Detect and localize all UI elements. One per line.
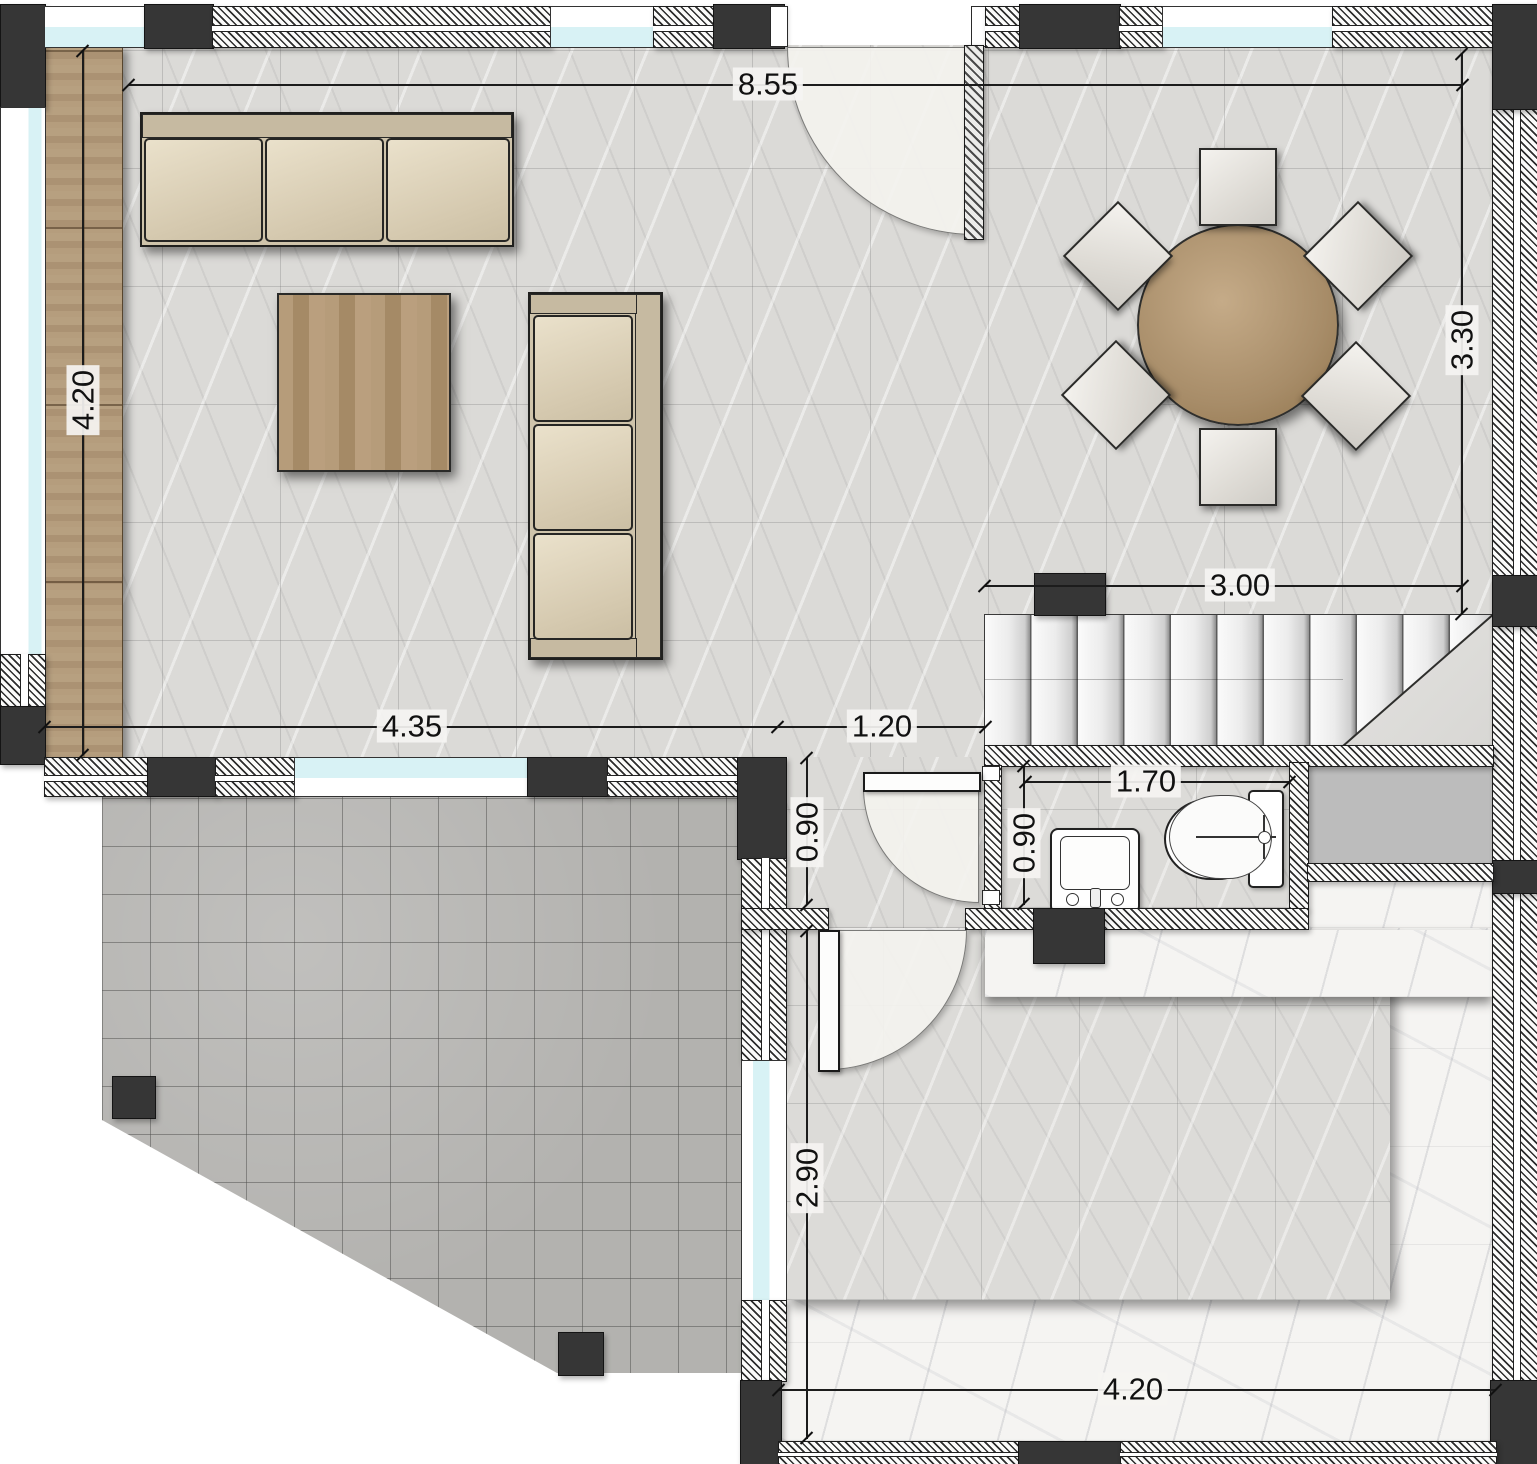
column xyxy=(1490,1380,1537,1464)
bedroom-floor-notch xyxy=(1307,880,1492,928)
dim-room-width: 4.20 xyxy=(1098,1373,1168,1406)
dining-chair xyxy=(1199,428,1277,506)
dim-living-bottom: 4.35 xyxy=(377,710,447,743)
dining-chair xyxy=(1199,148,1277,226)
column xyxy=(0,4,46,109)
column xyxy=(1034,573,1106,616)
wall-bottom xyxy=(778,1441,1020,1464)
window-top-1 xyxy=(44,6,146,48)
window-living-bottom xyxy=(294,757,529,797)
dim-hall-width: 1.20 xyxy=(847,710,917,743)
wall-hall-bottom xyxy=(741,908,829,930)
dim-room-depth: 2.90 xyxy=(791,1143,824,1213)
wall-top xyxy=(212,6,552,48)
column xyxy=(1492,860,1537,894)
wall-right xyxy=(1492,4,1537,1462)
column xyxy=(112,1076,156,1119)
sofa-horizontal xyxy=(140,112,514,247)
wall-top xyxy=(985,6,1021,48)
wall-shaft-bottom xyxy=(1307,863,1494,882)
dim-stairs-width: 3.00 xyxy=(1205,569,1275,602)
dim-right-height: 3.30 xyxy=(1446,305,1479,375)
coffee-table xyxy=(277,293,451,472)
window-left xyxy=(0,107,46,656)
terrace-floor xyxy=(102,795,742,1375)
floor-plan: 8.55 4.20 3.30 3.00 4.35 1.20 0.90 0.90 … xyxy=(0,0,1537,1464)
column xyxy=(0,706,46,765)
bathroom-sink xyxy=(1050,828,1140,914)
column xyxy=(527,757,609,797)
wall-living-bottom xyxy=(44,757,149,797)
column xyxy=(1018,1441,1122,1464)
wall-under-stairs xyxy=(984,745,1494,767)
wall-top xyxy=(653,6,715,48)
wall-bathroom-right xyxy=(1289,762,1309,910)
column xyxy=(1492,575,1537,627)
wall-bathroom-left xyxy=(984,765,1002,910)
wall-hall-bottom xyxy=(965,908,1309,930)
window-top-2 xyxy=(550,6,655,48)
bedroom-door-leaf xyxy=(818,930,840,1072)
wall-top xyxy=(1332,6,1494,48)
door-jamb xyxy=(770,6,788,47)
duct-shaft xyxy=(1307,762,1494,865)
door-jamb xyxy=(982,766,1000,781)
wall-top xyxy=(1119,6,1164,48)
column xyxy=(1492,4,1537,110)
column xyxy=(144,4,214,49)
entry-door-leaf xyxy=(964,45,984,240)
column xyxy=(558,1332,604,1376)
column xyxy=(1033,908,1105,964)
column xyxy=(1019,4,1121,49)
dim-bath-depth: 0.90 xyxy=(1008,808,1041,878)
bathroom-door-leaf xyxy=(863,772,981,792)
window-top-3 xyxy=(1162,6,1334,48)
wall-left xyxy=(0,654,46,708)
dim-left-height: 4.20 xyxy=(67,365,100,435)
door-jamb xyxy=(982,890,1000,905)
dim-top-width: 8.55 xyxy=(733,68,803,101)
dim-bath-width: 1.70 xyxy=(1111,765,1181,798)
dim-hall-depth: 0.90 xyxy=(791,797,824,867)
wall-bedroom-left xyxy=(741,858,787,1062)
wall-living-bottom xyxy=(607,757,739,797)
column xyxy=(147,757,217,797)
sofa-vertical xyxy=(528,292,663,660)
window-bedroom-left xyxy=(741,1060,787,1302)
toilet xyxy=(1162,788,1284,886)
wall-bottom xyxy=(1120,1441,1497,1464)
wall-living-bottom xyxy=(215,757,296,797)
wall-bedroom-left xyxy=(741,1300,787,1382)
column xyxy=(737,757,787,860)
staircase xyxy=(984,614,1493,747)
stair-mid-line xyxy=(985,679,1343,680)
